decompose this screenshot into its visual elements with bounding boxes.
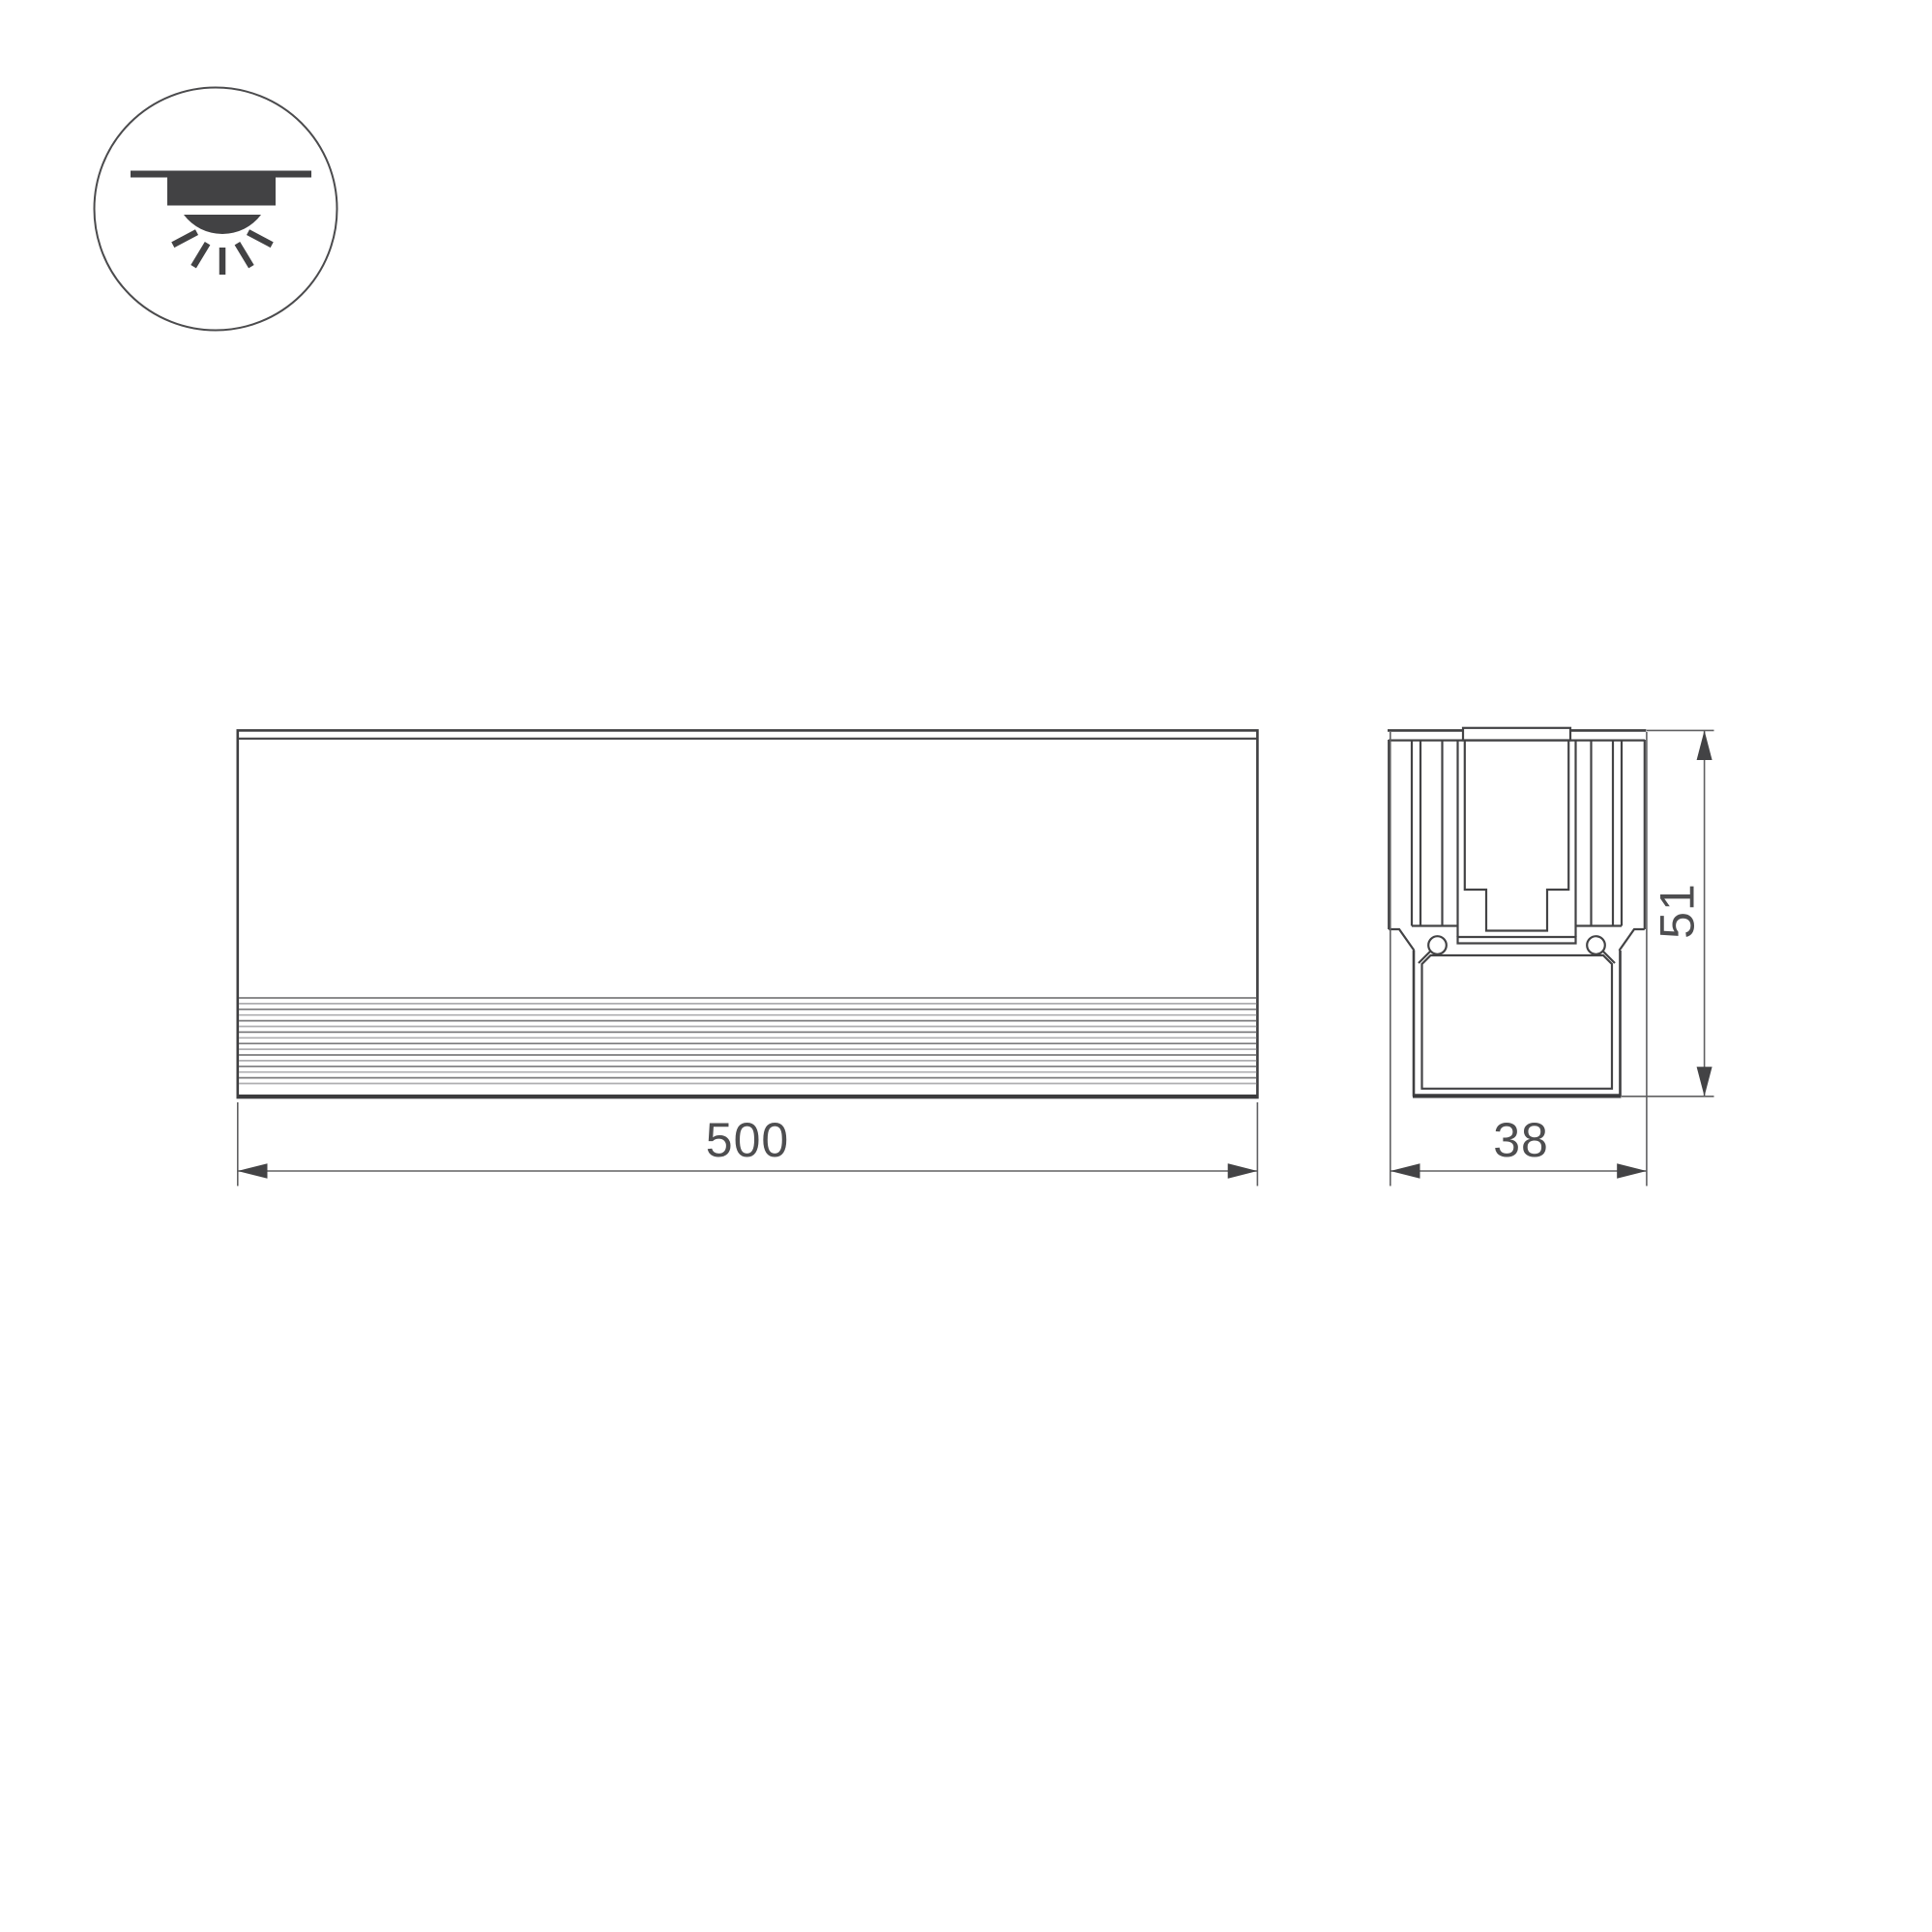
arrowhead-bottom xyxy=(1697,1067,1712,1097)
arrowhead-left xyxy=(238,1163,268,1179)
icon-circle xyxy=(95,88,337,331)
right-step xyxy=(1620,929,1645,951)
arrowhead-right xyxy=(1228,1163,1258,1179)
channel-cap xyxy=(1463,728,1570,741)
arrowhead-top xyxy=(1697,730,1712,760)
arrowhead-right xyxy=(1617,1163,1647,1179)
fixture-body xyxy=(238,730,1258,1098)
light-rays xyxy=(173,232,272,275)
technical-drawing: 500 xyxy=(0,0,1932,1932)
lower-box-outer xyxy=(1414,951,1621,1096)
channel-floor-plate xyxy=(1458,937,1576,944)
diffuser-hatch-lines xyxy=(239,998,1256,1084)
section-height-dimension: 51 xyxy=(1622,730,1714,1096)
led-channel-cavity xyxy=(1465,741,1568,931)
section-view xyxy=(1388,728,1647,1097)
left-step xyxy=(1389,929,1414,951)
dimension-label-height: 51 xyxy=(1651,883,1705,939)
dimension-label-length: 500 xyxy=(706,1113,789,1167)
recessed-downlight-icon xyxy=(95,88,337,331)
extrusion-fins xyxy=(1389,740,1645,937)
drawing-canvas: 500 xyxy=(0,0,1932,1932)
arrowhead-left xyxy=(1390,1163,1420,1179)
front-length-dimension: 500 xyxy=(238,1102,1258,1186)
dimension-label-width: 38 xyxy=(1493,1113,1549,1167)
lower-box-inner xyxy=(1422,955,1613,1089)
ceiling-line xyxy=(131,171,311,178)
front-view xyxy=(238,730,1258,1098)
clip-notches xyxy=(1419,936,1615,963)
recessed-housing xyxy=(167,177,276,206)
